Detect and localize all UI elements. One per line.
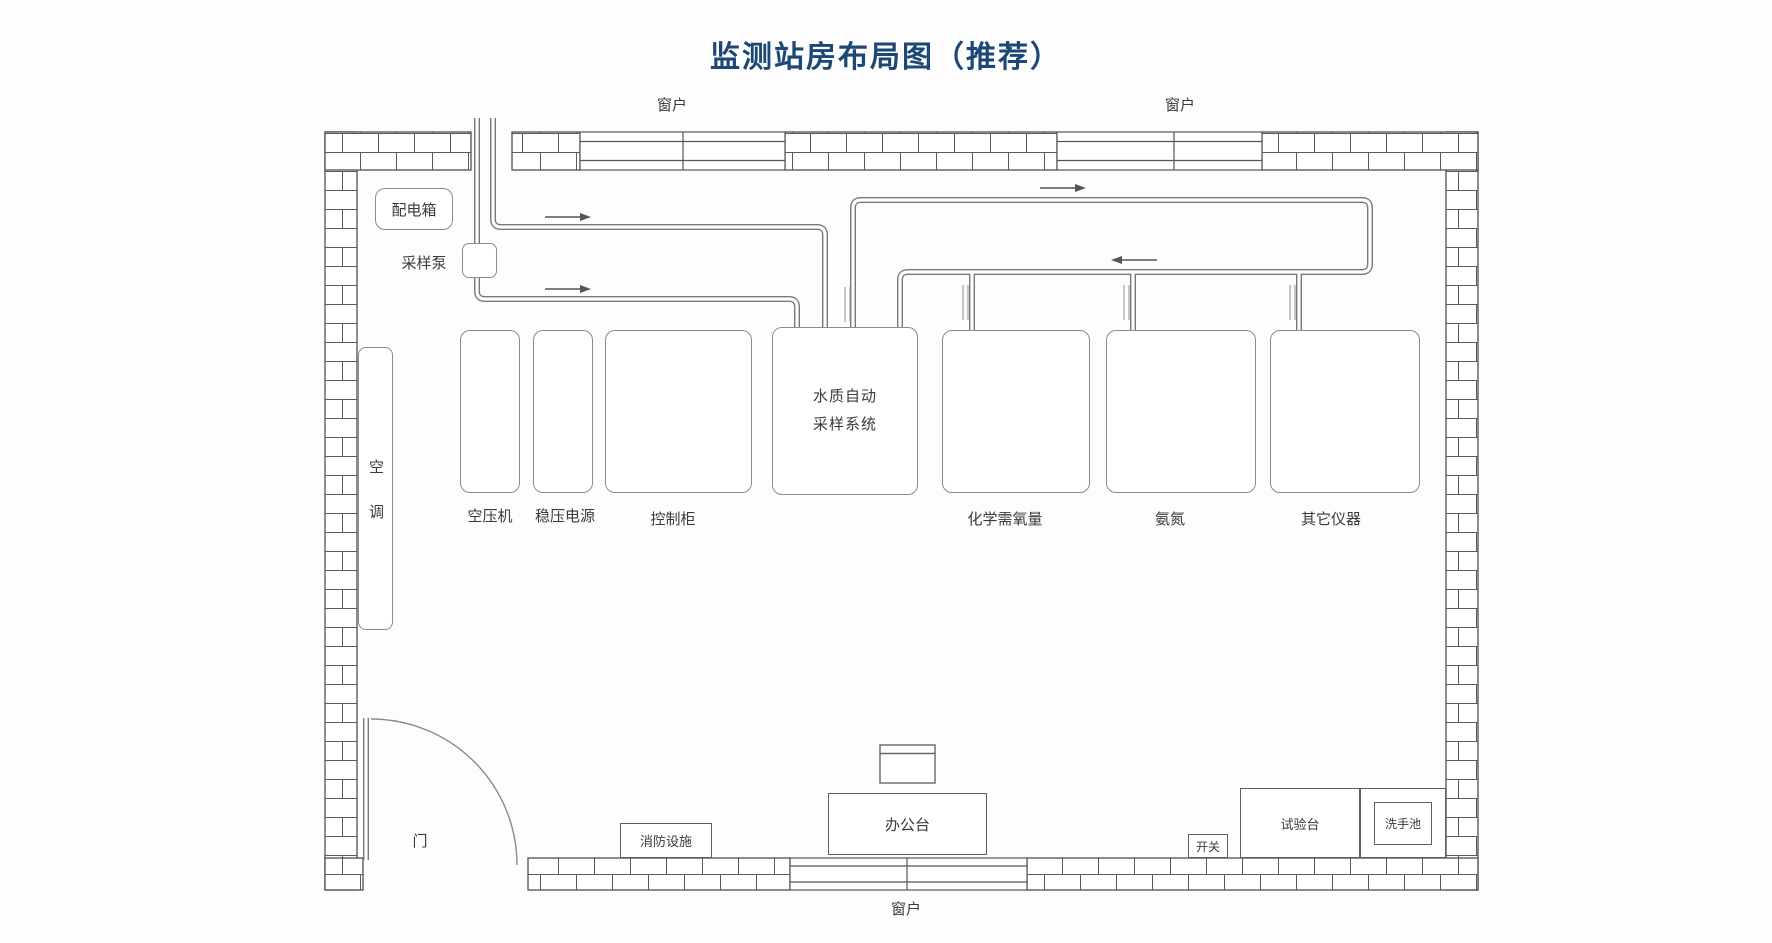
page-title: 监测站房布局图（推荐） bbox=[0, 32, 1772, 76]
office-desk: 办公台 bbox=[828, 793, 987, 855]
voltage-stabilizer bbox=[533, 330, 593, 493]
office-desk-label: 办公台 bbox=[885, 814, 930, 835]
air-compressor-label: 空压机 bbox=[467, 505, 512, 526]
cod-analyzer bbox=[942, 330, 1090, 493]
floor-plan-page: 监测站房布局图（推荐） 窗户 窗户 窗户 配电箱 采样泵 空调 空压机 稳压电源… bbox=[0, 0, 1772, 943]
control-cabinet bbox=[605, 330, 752, 493]
door-label: 门 bbox=[412, 830, 427, 851]
water-sampling-system: 水质自动采样系统 bbox=[772, 327, 918, 495]
other-instruments-label: 其它仪器 bbox=[1301, 508, 1361, 529]
air-conditioner-label: 空调 bbox=[365, 429, 386, 549]
sink-label: 洗手池 bbox=[1385, 815, 1421, 832]
cod-analyzer-label: 化学需氧量 bbox=[967, 508, 1042, 529]
sink-counter: 洗手池 bbox=[1360, 788, 1446, 858]
air-conditioner: 空调 bbox=[358, 347, 393, 630]
fire-equipment-label: 消防设施 bbox=[640, 831, 692, 850]
distribution-box-label: 配电箱 bbox=[391, 199, 436, 220]
window-bottom bbox=[790, 858, 1027, 890]
test-bench: 试验台 bbox=[1240, 788, 1360, 858]
water-sampling-system-label: 水质自动采样系统 bbox=[812, 383, 878, 440]
window-label-top-left: 窗户 bbox=[657, 94, 687, 115]
voltage-stabilizer-label: 稳压电源 bbox=[535, 505, 595, 526]
power-switch-label: 开关 bbox=[1196, 838, 1220, 855]
door-swing-arc bbox=[371, 719, 517, 865]
sampling-pump-label: 采样泵 bbox=[401, 252, 446, 273]
other-instruments bbox=[1270, 330, 1420, 493]
control-cabinet-label: 控制柜 bbox=[650, 508, 695, 529]
air-compressor bbox=[460, 330, 520, 493]
test-bench-label: 试验台 bbox=[1280, 814, 1319, 833]
sink: 洗手池 bbox=[1374, 802, 1432, 845]
window-label-top-right: 窗户 bbox=[1165, 94, 1195, 115]
sampling-pump bbox=[462, 243, 497, 278]
power-switch: 开关 bbox=[1188, 834, 1228, 858]
window-label-bottom: 窗户 bbox=[891, 898, 921, 919]
fire-equipment: 消防设施 bbox=[620, 823, 712, 858]
ammonia-analyzer bbox=[1106, 330, 1256, 493]
feed-tubes bbox=[845, 285, 1295, 322]
office-chair bbox=[880, 745, 935, 783]
ammonia-analyzer-label: 氨氮 bbox=[1155, 508, 1185, 529]
window-top-right bbox=[1057, 132, 1262, 170]
window-top-left bbox=[580, 132, 785, 170]
distribution-box: 配电箱 bbox=[375, 188, 453, 230]
